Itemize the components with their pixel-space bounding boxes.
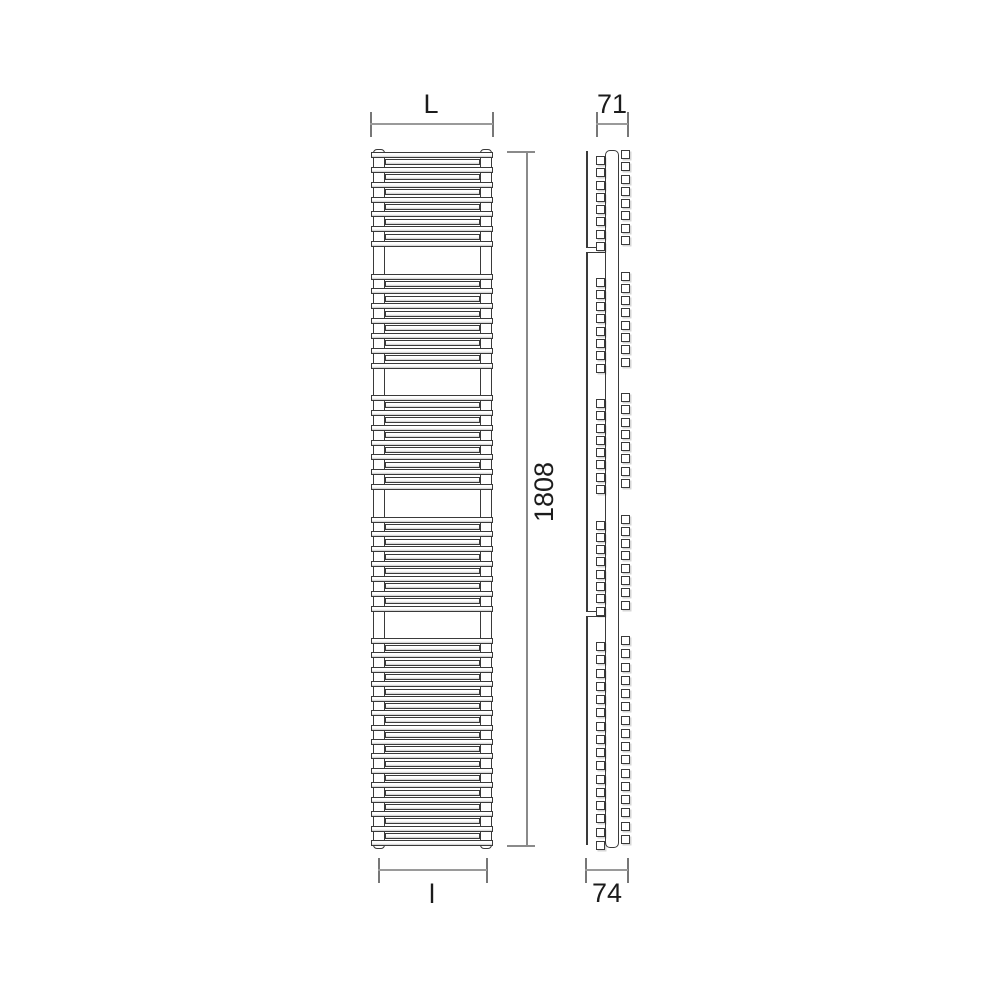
tube-end-front: [621, 321, 630, 330]
tube-end-back: [596, 473, 605, 482]
tube-end-back: [596, 411, 605, 420]
radiator-front-tube: [371, 710, 493, 716]
radiator-back-tube: [385, 204, 480, 210]
tube-end-front: [621, 702, 630, 711]
tube-end-front: [621, 636, 630, 645]
tube-end-front: [621, 175, 630, 184]
radiator-back-tube: [385, 402, 480, 408]
tube-end-front: [621, 393, 630, 402]
radiator-front-tube: [371, 725, 493, 731]
collector-tube-profile: [605, 150, 619, 848]
radiator-front-tube: [371, 561, 493, 567]
tube-end-back: [596, 230, 605, 239]
radiator-front-tube: [371, 182, 493, 188]
radiator-back-tube: [385, 174, 480, 180]
tube-end-front: [621, 588, 630, 597]
tube-end-back: [596, 168, 605, 177]
tube-end-back: [596, 278, 605, 287]
tube-end-front: [621, 418, 630, 427]
radiator-front-tube: [371, 454, 493, 460]
radiator-back-tube: [385, 355, 480, 361]
tube-end-back: [596, 545, 605, 554]
tube-end-front: [621, 442, 630, 451]
tube-end-back: [596, 205, 605, 214]
radiator-back-tube: [385, 447, 480, 453]
radiator-back-tube: [385, 818, 480, 824]
tube-end-back: [596, 327, 605, 336]
radiator-back-tube: [385, 689, 480, 695]
radiator-front-tube: [371, 197, 493, 203]
tube-end-front: [621, 333, 630, 342]
radiator-back-tube: [385, 432, 480, 438]
radiator-front-tube: [371, 768, 493, 774]
radiator-back-tube: [385, 645, 480, 651]
dimension-tick: [627, 112, 629, 137]
tube-end-front: [621, 716, 630, 725]
dimension-end-cap: [507, 151, 535, 153]
tube-end-back: [596, 775, 605, 784]
tube-end-back: [596, 156, 605, 165]
radiator-technical-drawing: L 71 1808 l 74: [0, 0, 1000, 1000]
tube-end-front: [621, 527, 630, 536]
tube-end-back: [596, 814, 605, 823]
tube-end-front: [621, 236, 630, 245]
radiator-front-tube: [371, 782, 493, 788]
tube-end-front: [621, 454, 630, 463]
tube-end-back: [596, 314, 605, 323]
tube-end-back: [596, 570, 605, 579]
tube-end-back: [596, 533, 605, 542]
tube-end-front: [621, 284, 630, 293]
radiator-back-tube: [385, 703, 480, 709]
radiator-front-tube: [371, 318, 493, 324]
tube-end-back: [596, 801, 605, 810]
tube-end-back: [596, 448, 605, 457]
radiator-back-tube: [385, 311, 480, 317]
radiator-back-tube: [385, 833, 480, 839]
radiator-front-tube: [371, 840, 493, 846]
tube-end-front: [621, 345, 630, 354]
tube-end-front: [621, 676, 630, 685]
tube-end-back: [596, 521, 605, 530]
tube-end-front: [621, 405, 630, 414]
radiator-front-tube: [371, 410, 493, 416]
tube-end-back: [596, 748, 605, 757]
tube-end-back: [596, 242, 605, 251]
tube-end-back: [596, 682, 605, 691]
tube-end-front: [621, 211, 630, 220]
radiator-back-tube: [385, 674, 480, 680]
tube-end-back: [596, 217, 605, 226]
tube-end-front: [621, 308, 630, 317]
radiator-back-tube: [385, 340, 480, 346]
radiator-front-tube: [371, 274, 493, 280]
radiator-front-tube: [371, 517, 493, 523]
tube-end-front: [621, 729, 630, 738]
tube-end-front: [621, 649, 630, 658]
dimension-tick: [486, 858, 488, 883]
tube-end-back: [596, 761, 605, 770]
tube-end-front: [621, 515, 630, 524]
tube-end-back: [596, 193, 605, 202]
radiator-back-tube: [385, 660, 480, 666]
tube-end-front: [621, 199, 630, 208]
dimension-label-height: 1808: [530, 462, 558, 522]
tube-end-back: [596, 788, 605, 797]
tube-end-front: [621, 835, 630, 844]
radiator-back-tube: [385, 325, 480, 331]
tube-end-front: [621, 187, 630, 196]
tube-end-front: [621, 742, 630, 751]
dimension-tick: [492, 112, 494, 137]
tube-end-front: [621, 358, 630, 367]
radiator-back-tube: [385, 583, 480, 589]
radiator-front-tube: [371, 167, 493, 173]
radiator-front-tube: [371, 440, 493, 446]
radiator-front-tube: [371, 606, 493, 612]
tube-end-front: [621, 755, 630, 764]
tube-end-front: [621, 576, 630, 585]
tube-end-front: [621, 808, 630, 817]
tube-end-front: [621, 782, 630, 791]
dimension-line: [526, 152, 528, 846]
radiator-front-tube: [371, 226, 493, 232]
radiator-front-tube: [371, 681, 493, 687]
tube-end-back: [596, 655, 605, 664]
tube-end-front: [621, 467, 630, 476]
dimension-label-top-depth: 71: [582, 90, 642, 118]
radiator-back-tube: [385, 568, 480, 574]
tube-end-front: [621, 689, 630, 698]
radiator-front-tube: [371, 576, 493, 582]
dimension-line: [585, 869, 628, 871]
tube-end-back: [596, 642, 605, 651]
radiator-back-tube: [385, 234, 480, 240]
tube-end-back: [596, 364, 605, 373]
tube-end-front: [621, 551, 630, 560]
tube-end-back: [596, 351, 605, 360]
wall-line: [586, 151, 588, 845]
tube-end-front: [621, 162, 630, 171]
tube-end-back: [596, 460, 605, 469]
radiator-front-tube: [371, 739, 493, 745]
radiator-front-tube: [371, 333, 493, 339]
radiator-front-tube: [371, 753, 493, 759]
radiator-front-tube: [371, 303, 493, 309]
tube-end-back: [596, 607, 605, 616]
tube-end-back: [596, 828, 605, 837]
tube-end-front: [621, 601, 630, 610]
radiator-front-tube: [371, 826, 493, 832]
tube-end-back: [596, 339, 605, 348]
dimension-line: [370, 123, 493, 125]
radiator-front-tube: [371, 241, 493, 247]
tube-end-back: [596, 290, 605, 299]
tube-end-back: [596, 735, 605, 744]
tube-end-back: [596, 424, 605, 433]
radiator-front-tube: [371, 425, 493, 431]
radiator-front-tube: [371, 469, 493, 475]
tube-end-front: [621, 430, 630, 439]
radiator-front-tube: [371, 363, 493, 369]
tube-end-back: [596, 302, 605, 311]
tube-end-back: [596, 695, 605, 704]
radiator-front-tube: [371, 152, 493, 158]
radiator-back-tube: [385, 189, 480, 195]
radiator-front-tube: [371, 395, 493, 401]
dimension-label-bottom-depth: 74: [577, 879, 637, 907]
radiator-front-tube: [371, 797, 493, 803]
radiator-back-tube: [385, 761, 480, 767]
radiator-back-tube: [385, 790, 480, 796]
tube-end-back: [596, 594, 605, 603]
dimension-line: [378, 869, 487, 871]
tube-end-back: [596, 669, 605, 678]
tube-end-front: [621, 564, 630, 573]
tube-end-front: [621, 479, 630, 488]
dimension-end-cap: [507, 845, 535, 847]
dimension-tick: [596, 112, 598, 137]
radiator-back-tube: [385, 554, 480, 560]
tube-end-back: [596, 841, 605, 850]
radiator-back-tube: [385, 159, 480, 165]
tube-end-back: [596, 582, 605, 591]
radiator-back-tube: [385, 732, 480, 738]
radiator-back-tube: [385, 281, 480, 287]
radiator-front-tube: [371, 667, 493, 673]
tube-end-front: [621, 795, 630, 804]
radiator-back-tube: [385, 717, 480, 723]
radiator-back-tube: [385, 598, 480, 604]
radiator-front-tube: [371, 591, 493, 597]
tube-end-back: [596, 436, 605, 445]
tube-end-front: [621, 296, 630, 305]
tube-end-front: [621, 224, 630, 233]
radiator-back-tube: [385, 462, 480, 468]
radiator-back-tube: [385, 296, 480, 302]
radiator-front-tube: [371, 652, 493, 658]
radiator-front-tube: [371, 211, 493, 217]
tube-end-back: [596, 722, 605, 731]
tube-end-front: [621, 822, 630, 831]
tube-end-back: [596, 181, 605, 190]
dimension-tick: [370, 112, 372, 137]
radiator-front-tube: [371, 696, 493, 702]
tube-end-back: [596, 557, 605, 566]
radiator-front-tube: [371, 348, 493, 354]
dimension-label-top-width: L: [401, 90, 461, 118]
tube-end-back: [596, 485, 605, 494]
dimension-label-bottom-width: l: [402, 880, 462, 908]
radiator-front-tube: [371, 531, 493, 537]
radiator-back-tube: [385, 746, 480, 752]
radiator-front-tube: [371, 484, 493, 490]
radiator-back-tube: [385, 775, 480, 781]
radiator-back-tube: [385, 219, 480, 225]
dimension-line: [596, 123, 628, 125]
radiator-back-tube: [385, 524, 480, 530]
tube-end-front: [621, 272, 630, 281]
tube-end-front: [621, 539, 630, 548]
radiator-back-tube: [385, 804, 480, 810]
radiator-front-tube: [371, 288, 493, 294]
radiator-back-tube: [385, 477, 480, 483]
dimension-tick: [378, 858, 380, 883]
radiator-front-tube: [371, 546, 493, 552]
tube-end-back: [596, 708, 605, 717]
tube-end-front: [621, 150, 630, 159]
radiator-back-tube: [385, 539, 480, 545]
tube-end-back: [596, 399, 605, 408]
tube-end-front: [621, 769, 630, 778]
radiator-back-tube: [385, 417, 480, 423]
tube-end-front: [621, 663, 630, 672]
radiator-front-tube: [371, 638, 493, 644]
radiator-front-tube: [371, 811, 493, 817]
